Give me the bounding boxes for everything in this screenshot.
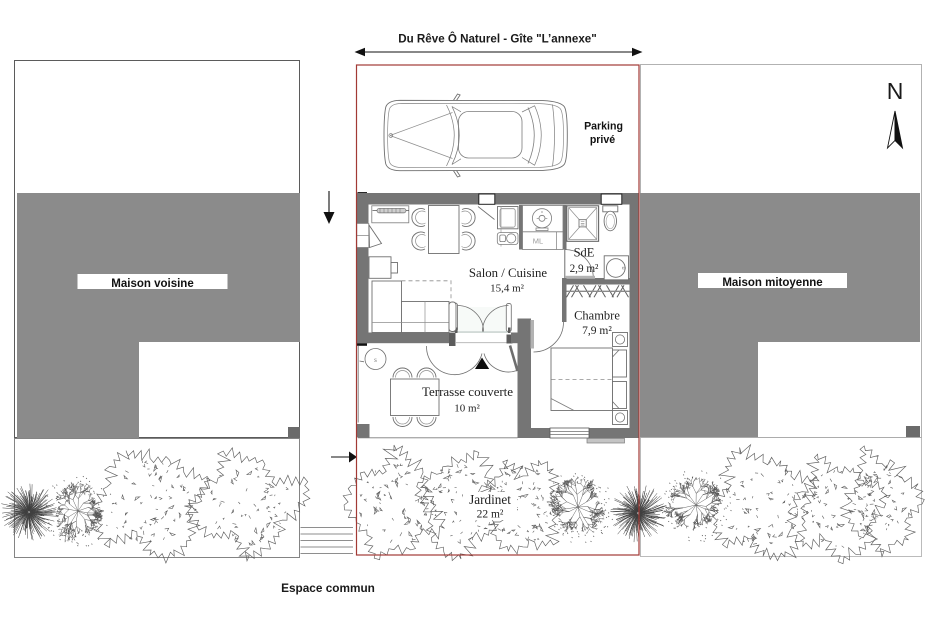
svg-text:privé: privé bbox=[590, 134, 615, 146]
svg-text:Maison voisine: Maison voisine bbox=[111, 278, 193, 290]
svg-text:N: N bbox=[887, 78, 904, 104]
svg-text:ML: ML bbox=[533, 237, 543, 246]
svg-text:s: s bbox=[374, 356, 377, 364]
svg-text:10 m²: 10 m² bbox=[454, 403, 480, 415]
svg-text:Maison mitoyenne: Maison mitoyenne bbox=[722, 277, 822, 289]
svg-text:7,9 m²: 7,9 m² bbox=[582, 325, 612, 337]
svg-text:Salon / Cuisine: Salon / Cuisine bbox=[469, 266, 548, 280]
svg-text:Terrasse couverte: Terrasse couverte bbox=[422, 384, 513, 399]
svg-text:Jardinet: Jardinet bbox=[469, 492, 511, 507]
svg-text:Chambre: Chambre bbox=[574, 309, 620, 323]
svg-text:SdE: SdE bbox=[574, 246, 595, 260]
svg-text:22 m²: 22 m² bbox=[477, 509, 504, 521]
svg-text:Parking: Parking bbox=[584, 121, 623, 133]
svg-text:Du Rêve Ô Naturel - Gîte "L’an: Du Rêve Ô Naturel - Gîte "L’annexe" bbox=[398, 33, 596, 46]
svg-text:15,4 m²: 15,4 m² bbox=[490, 283, 525, 295]
svg-text:Espace commun: Espace commun bbox=[281, 581, 375, 595]
svg-text:2,9 m²: 2,9 m² bbox=[570, 263, 599, 275]
